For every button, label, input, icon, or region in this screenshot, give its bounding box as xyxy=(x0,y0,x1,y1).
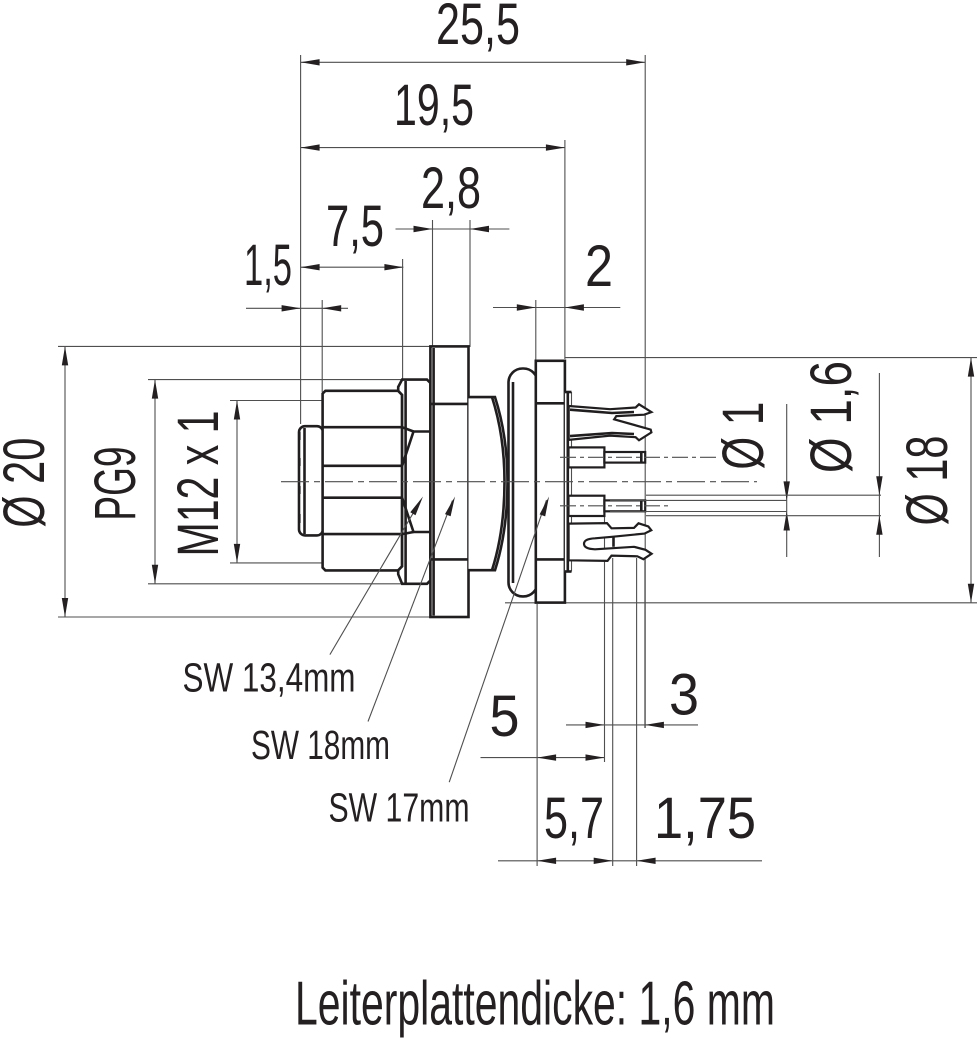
svg-text:PG9: PG9 xyxy=(83,447,148,521)
svg-text:SW 18mm: SW 18mm xyxy=(251,722,390,768)
svg-text:Ø 1: Ø 1 xyxy=(711,402,776,470)
svg-text:19,5: 19,5 xyxy=(394,73,474,138)
svg-text:2: 2 xyxy=(585,234,613,299)
svg-text:2,8: 2,8 xyxy=(421,156,481,221)
svg-text:SW 17mm: SW 17mm xyxy=(329,785,470,831)
svg-text:Ø 20: Ø 20 xyxy=(0,438,57,528)
svg-text:M12 x 1: M12 x 1 xyxy=(166,411,231,557)
svg-text:5: 5 xyxy=(490,684,520,749)
svg-text:5,7: 5,7 xyxy=(544,786,604,851)
svg-text:1,5: 1,5 xyxy=(244,233,292,298)
svg-text:25,5: 25,5 xyxy=(436,0,520,57)
svg-text:SW 13,4mm: SW 13,4mm xyxy=(183,655,356,701)
svg-text:Ø 1,6: Ø 1,6 xyxy=(799,361,864,473)
svg-text:Ø 18: Ø 18 xyxy=(895,436,960,526)
svg-text:7,5: 7,5 xyxy=(326,194,384,259)
svg-text:1,75: 1,75 xyxy=(654,786,756,851)
svg-text:3: 3 xyxy=(669,663,699,728)
svg-text:Leiterplattendicke: 1,6 mm: Leiterplattendicke: 1,6 mm xyxy=(295,970,775,1039)
